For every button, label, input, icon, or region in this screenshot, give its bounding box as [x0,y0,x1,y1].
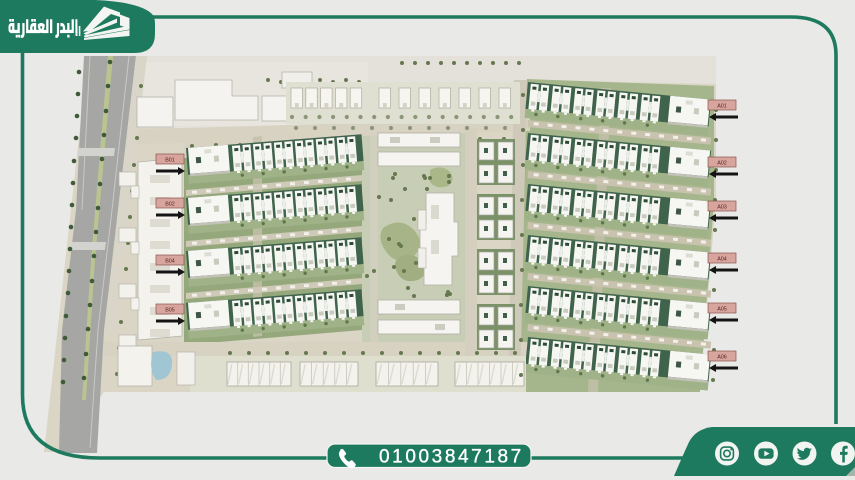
svg-text:B02: B02 [165,202,175,208]
svg-text:01003847187: 01003847187 [379,447,524,468]
svg-text:B04: B04 [165,259,175,265]
svg-text:B05: B05 [165,308,175,314]
svg-text:A06: A06 [717,355,727,361]
svg-text:B01: B01 [165,158,175,164]
svg-text:A02: A02 [717,161,727,167]
svg-text:A05: A05 [717,307,727,313]
svg-text:A04: A04 [717,257,727,263]
svg-text:A03: A03 [717,205,727,211]
svg-text:A01: A01 [717,104,727,110]
